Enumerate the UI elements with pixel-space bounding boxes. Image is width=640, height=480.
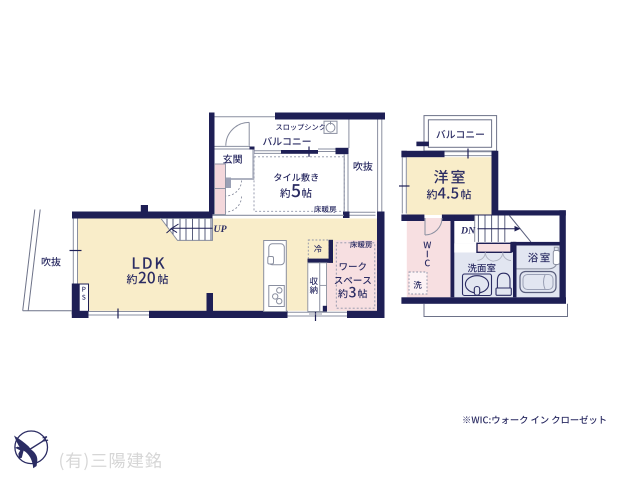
svg-text:DN: DN — [460, 226, 476, 237]
svg-text:UP: UP — [214, 224, 228, 235]
